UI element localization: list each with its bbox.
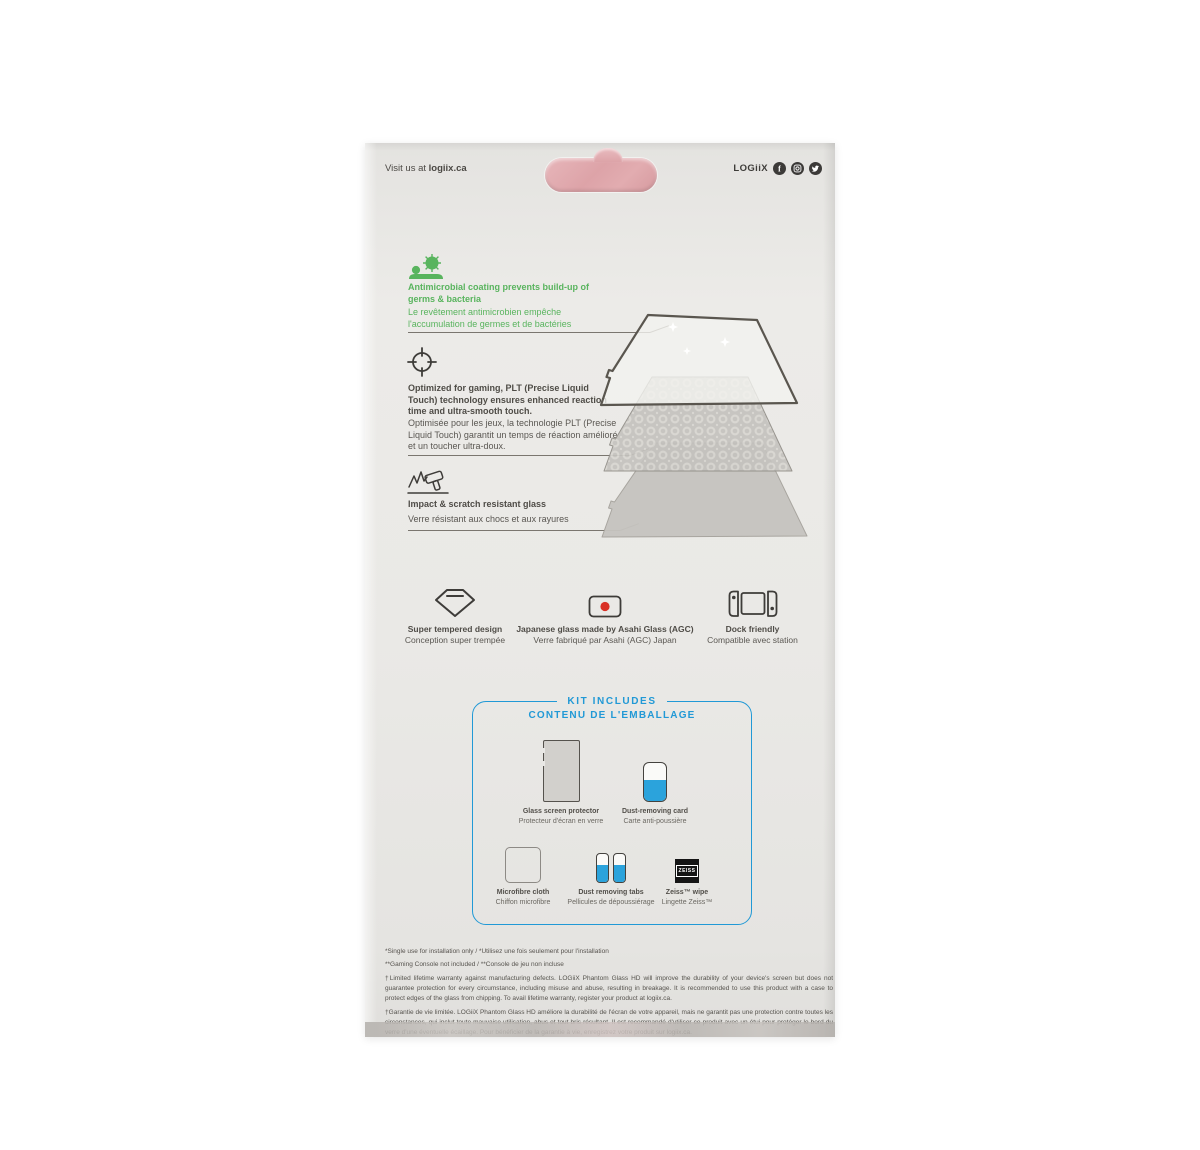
visit-us-text: Visit us at logiix.ca	[385, 163, 467, 174]
kit-item-card: Dust-removing card Carte anti-poussière	[605, 738, 705, 826]
kit-item-zeiss-fr: Lingette Zeiss™	[637, 898, 737, 908]
germs-icon	[406, 253, 446, 281]
badge-asahi-fr: Verre fabriqué par Asahi (AGC) Japan	[515, 635, 695, 646]
glass-layer-top	[601, 315, 797, 405]
dust-card-icon	[605, 738, 705, 802]
facebook-icon: f	[773, 162, 786, 175]
kit-item-protector: Glass screen protector Protecteur d'écra…	[511, 738, 611, 826]
instagram-icon	[791, 162, 804, 175]
brand-row: LOGiiX f	[733, 162, 822, 175]
badge-dock-fr: Compatible avec station	[680, 635, 825, 646]
zeiss-wipe-icon: ZEISS	[637, 845, 737, 883]
badge-tempered: Super tempered design Conception super t…	[390, 583, 520, 646]
feature-gaming-en: Optimized for gaming, PLT (Precise Liqui…	[408, 383, 608, 418]
photo-stage: Visit us at logiix.ca LOGiiX f	[0, 0, 1200, 1150]
badge-asahi-en: Japanese glass made by Asahi Glass (AGC)	[515, 624, 695, 635]
kit-item-zeiss: ZEISS Zeiss™ wipe Lingette Zeiss™	[637, 845, 737, 907]
kit-item-card-en: Dust-removing card	[605, 807, 705, 817]
visit-url: logiix.ca	[429, 163, 467, 174]
zeiss-logo-text: ZEISS	[676, 865, 699, 877]
glass-protector-icon	[511, 738, 611, 802]
kit-item-card-fr: Carte anti-poussière	[605, 817, 705, 827]
microfibre-cloth-icon	[473, 845, 573, 883]
kit-title: KIT INCLUDES CONTENU DE L'EMBALLAGE	[473, 695, 751, 722]
kit-item-protector-fr: Protecteur d'écran en verre	[511, 817, 611, 827]
badge-dock: Dock friendly Compatible avec station	[680, 583, 825, 646]
feature-antimicrobial-en: Antimicrobial coating prevents build-up …	[408, 282, 598, 305]
visit-prefix: Visit us at	[385, 163, 429, 174]
logiix-wordmark: LOGiiX	[733, 163, 768, 174]
diamond-icon	[390, 583, 520, 619]
feature-antimicrobial-fr: Le revêtement antimicrobien empêche l'ac…	[408, 307, 608, 330]
badge-tempered-fr: Conception super trempée	[390, 635, 520, 646]
japan-flag-icon	[515, 583, 695, 619]
kit-item-cloth-fr: Chiffon microfibre	[473, 898, 573, 908]
badge-dock-en: Dock friendly	[680, 624, 825, 635]
legal-console-not-included: **Gaming Console not included / **Consol…	[385, 960, 833, 970]
switch-dock-icon	[680, 583, 825, 619]
glass-layers-diagram	[585, 305, 815, 545]
badge-asahi: Japanese glass made by Asahi Glass (AGC)…	[515, 583, 695, 646]
twitter-icon	[809, 162, 822, 175]
package-back-panel: Visit us at logiix.ca LOGiiX f	[365, 143, 835, 1037]
kit-includes-box: KIT INCLUDES CONTENU DE L'EMBALLAGE Glas…	[472, 701, 752, 925]
package-left-edge-shading	[365, 143, 377, 1037]
badge-tempered-en: Super tempered design	[390, 624, 520, 635]
kit-title-en: KIT INCLUDES	[557, 695, 666, 708]
kit-item-cloth: Microfibre cloth Chiffon microfibre	[473, 845, 573, 907]
legal-single-use: *Single use for installation only / *Uti…	[385, 947, 833, 957]
crosshair-icon	[406, 346, 438, 378]
kit-item-protector-en: Glass screen protector	[511, 807, 611, 817]
package-bottom-flap-edge	[365, 1022, 835, 1037]
svg-text:f: f	[778, 165, 781, 173]
kit-item-cloth-en: Microfibre cloth	[473, 888, 573, 898]
impact-hammer-icon	[406, 465, 450, 495]
kit-title-fr: CONTENU DE L'EMBALLAGE	[473, 709, 751, 722]
kit-item-zeiss-en: Zeiss™ wipe	[637, 888, 737, 898]
hang-tab-cutout	[545, 158, 657, 192]
legal-warranty-en: †Limited lifetime warranty against manuf…	[385, 974, 833, 1004]
